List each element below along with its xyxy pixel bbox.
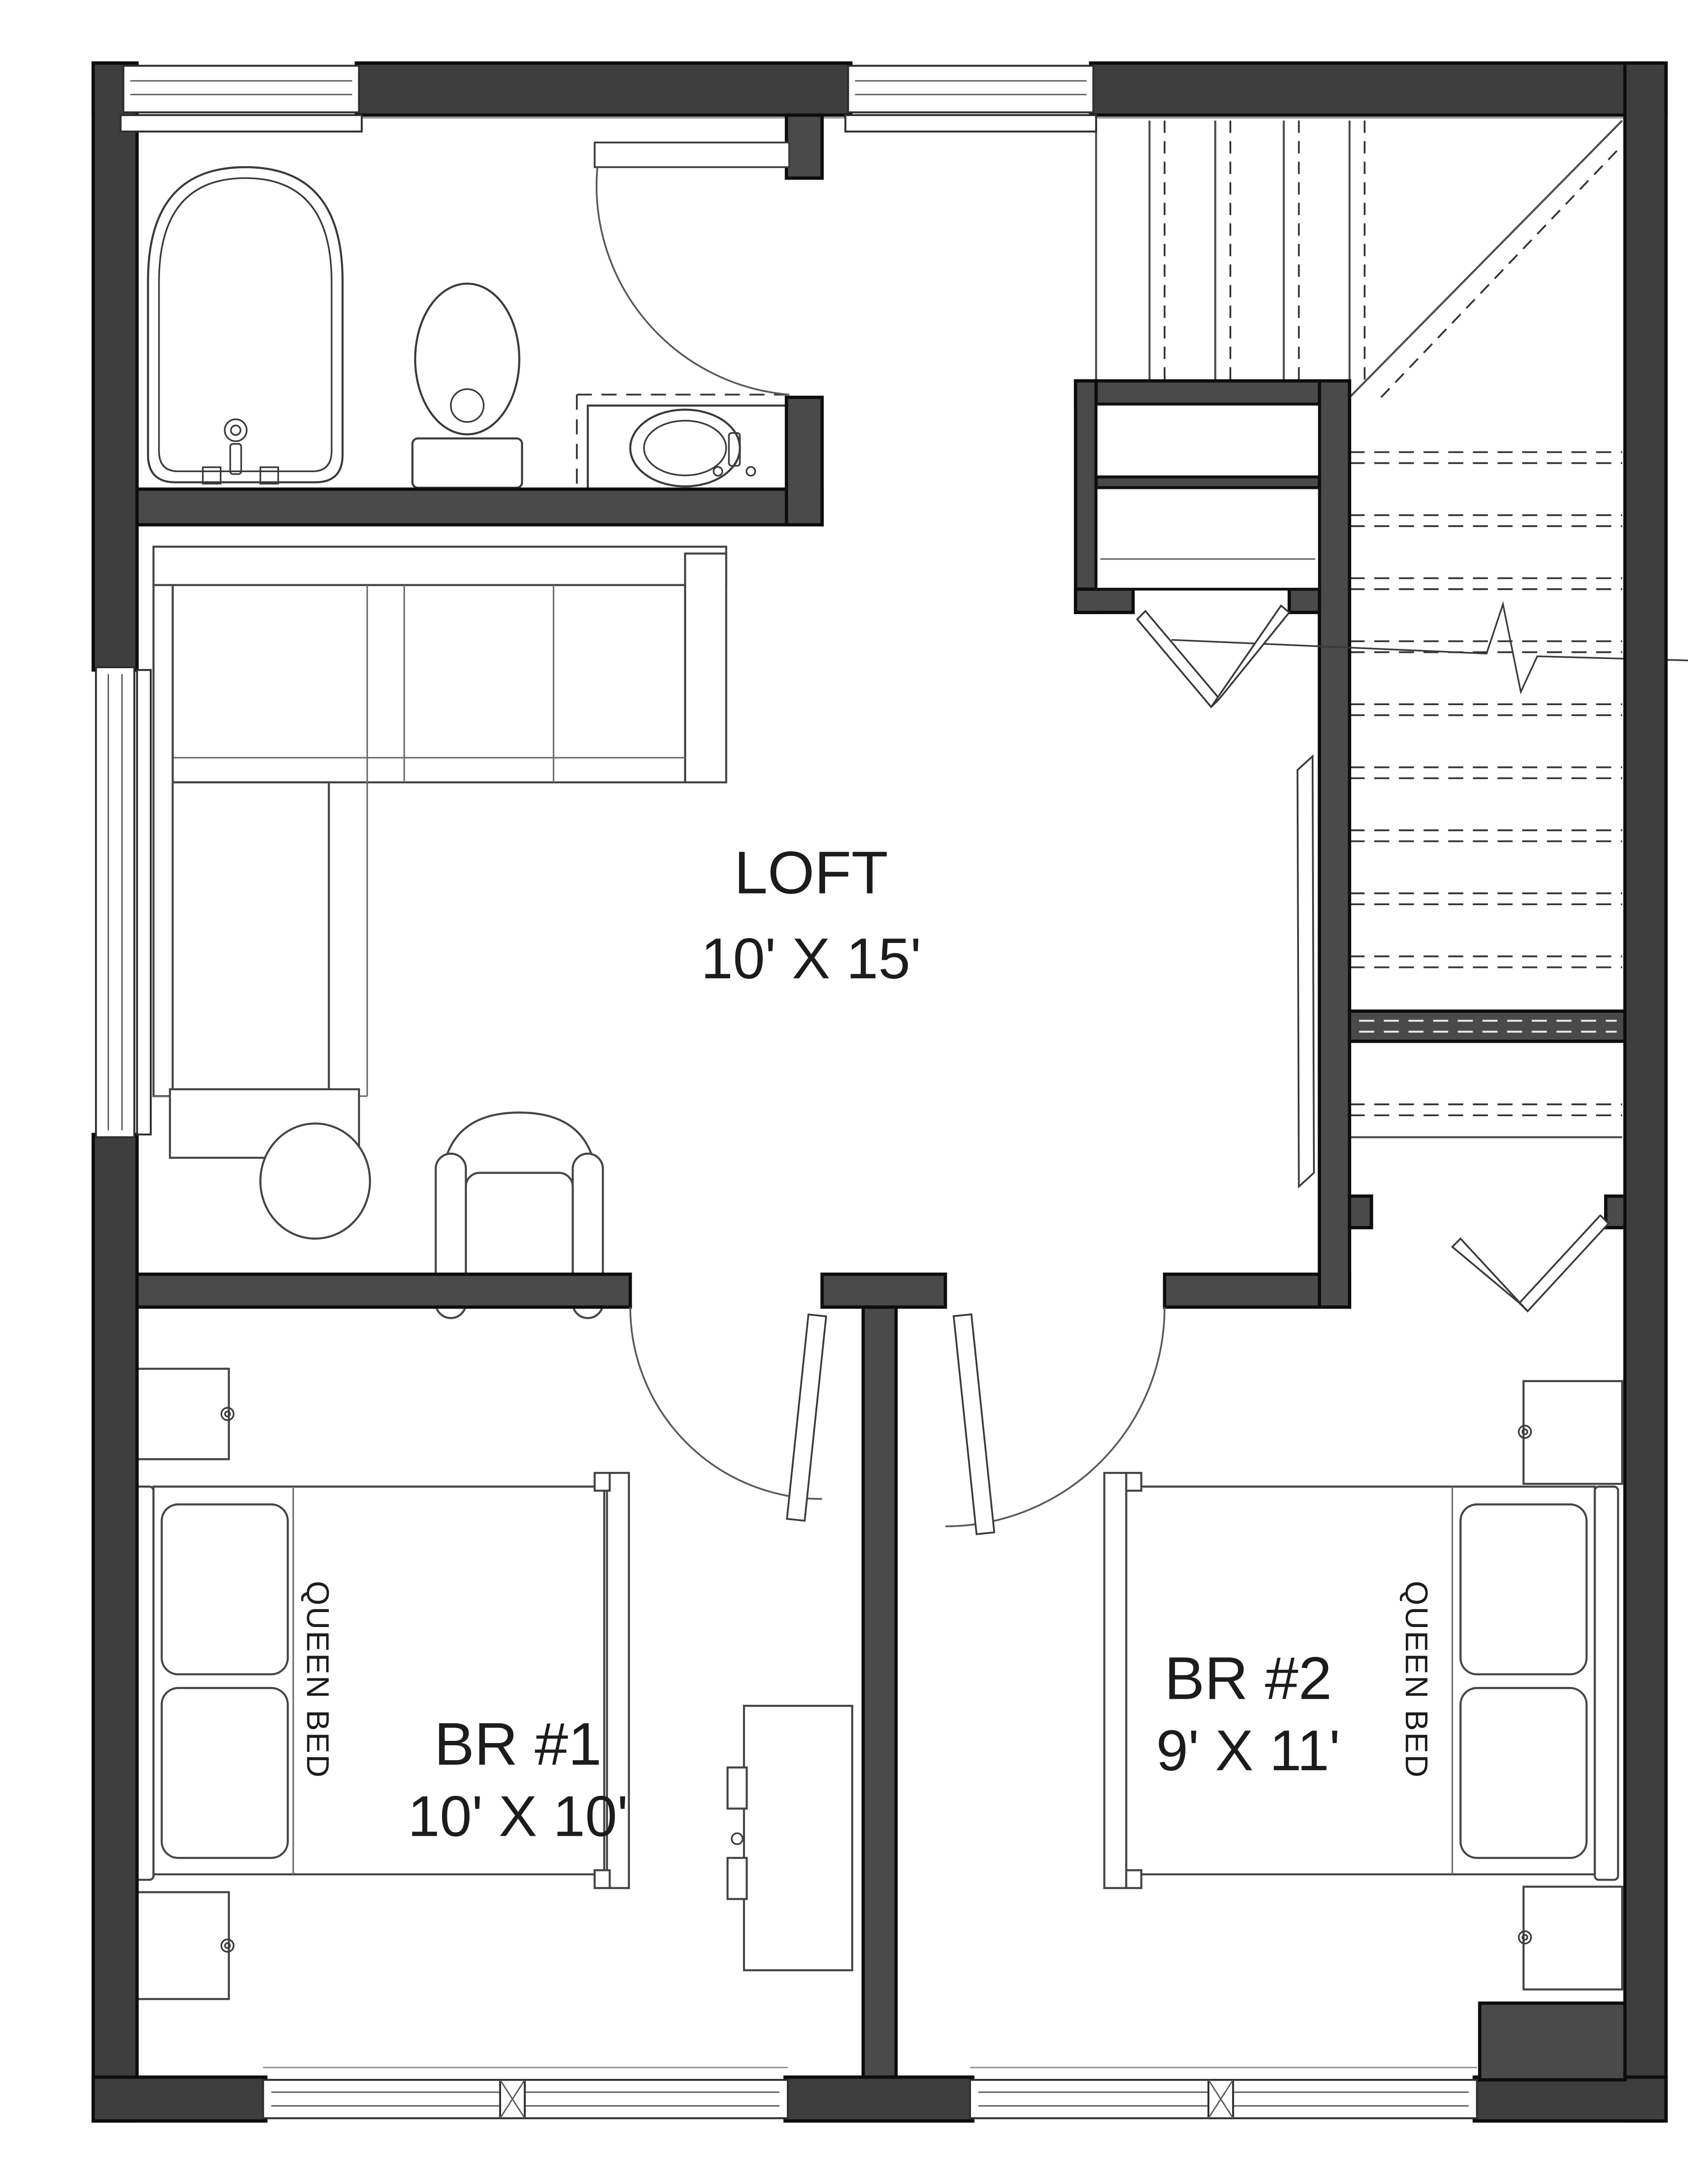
sofa-seat xyxy=(173,585,685,783)
bathroom-door-leaf xyxy=(595,142,789,167)
south-wall-segment xyxy=(93,2077,266,2121)
bathroom-door-stub xyxy=(786,115,822,178)
toilet-bowl xyxy=(415,284,519,434)
bed-post xyxy=(1126,1473,1141,1491)
bed-post xyxy=(1126,1870,1141,1888)
stair-railing xyxy=(1298,756,1314,1187)
sofa-chaise-left-edge xyxy=(153,585,173,1096)
closet-west-wall xyxy=(1076,381,1096,612)
closet-door-stub-right xyxy=(1289,589,1320,612)
pillow xyxy=(1461,1688,1587,1858)
south-wall-segment xyxy=(1474,2077,1666,2121)
closet-north-wall xyxy=(1076,381,1320,404)
br2-dims: 9' X 11' xyxy=(1156,1718,1340,1783)
vestibule-stub xyxy=(1350,1196,1371,1228)
north-wall-segment xyxy=(1091,63,1666,115)
pillow xyxy=(162,1504,288,1674)
nightstand xyxy=(1524,1887,1622,1990)
south-wall-segment xyxy=(785,2077,973,2121)
sofa-right-arm xyxy=(685,553,726,782)
queen-bed-label-2: QUEEN BED xyxy=(1399,1581,1434,1779)
bathroom-vanity xyxy=(577,395,789,489)
center-dividing-wall xyxy=(863,1307,896,2077)
bathroom-window-sill xyxy=(120,115,362,131)
bathroom-east-wall xyxy=(786,397,822,525)
east-wall xyxy=(1625,63,1666,2121)
toilet-tank xyxy=(412,438,522,488)
north-wall-segment xyxy=(356,63,851,115)
pillow xyxy=(1461,1504,1587,1674)
bathroom-window xyxy=(124,66,359,113)
loft-dims: 10' X 15' xyxy=(701,926,921,990)
southeast-corner-block xyxy=(1480,2003,1625,2080)
desk xyxy=(744,1706,852,1970)
loft-label: LOFT xyxy=(734,839,888,906)
stairwell-west-wall xyxy=(1319,381,1350,1307)
loft-north-window-sill xyxy=(845,115,1096,131)
west-wall-segment xyxy=(93,1135,137,2121)
pillow xyxy=(162,1688,288,1858)
closet-shelf-lower xyxy=(1096,488,1319,590)
toilet xyxy=(412,284,522,488)
stairwell-south-wall xyxy=(1350,1011,1625,1041)
bed-headboard xyxy=(1595,1487,1618,1880)
bed-footboard xyxy=(1104,1473,1126,1888)
bed-post xyxy=(595,1870,610,1888)
bed-post xyxy=(595,1473,610,1491)
closet-shelf-divider xyxy=(1096,477,1319,488)
west-wall-segment xyxy=(93,63,137,670)
bathroom-south-wall xyxy=(137,489,822,525)
desk-item xyxy=(728,1858,747,1899)
br1-dims: 10' X 10' xyxy=(408,1784,628,1848)
bathtub xyxy=(148,167,343,484)
br1-label: BR #1 xyxy=(434,1711,602,1778)
queen-bed-label-1: QUEEN BED xyxy=(300,1581,335,1779)
br2-label: BR #2 xyxy=(1164,1645,1332,1712)
nightstand xyxy=(129,1369,229,1460)
closet-door-stub-left xyxy=(1076,589,1133,612)
desk-item xyxy=(728,1768,747,1809)
loft-west-window-sill xyxy=(137,670,151,1135)
closet-shelf-upper xyxy=(1096,404,1319,477)
loft-west-window xyxy=(96,667,134,1137)
nightstand xyxy=(1524,1381,1622,1484)
round-side-table xyxy=(260,1124,370,1239)
loft-north-window xyxy=(848,66,1093,113)
nightstand xyxy=(129,1892,229,1999)
sofa-back xyxy=(153,547,726,585)
sofa-chaise-cushion xyxy=(173,783,329,1089)
loft-br1-wall xyxy=(137,1274,630,1307)
floor-plan-page: LOFT 10' X 15' BR #1 10' X 10' BR #2 9' … xyxy=(0,0,1688,2184)
center-wall-cap xyxy=(822,1274,946,1307)
floor-plan: LOFT 10' X 15' BR #1 10' X 10' BR #2 9' … xyxy=(0,0,1688,2184)
